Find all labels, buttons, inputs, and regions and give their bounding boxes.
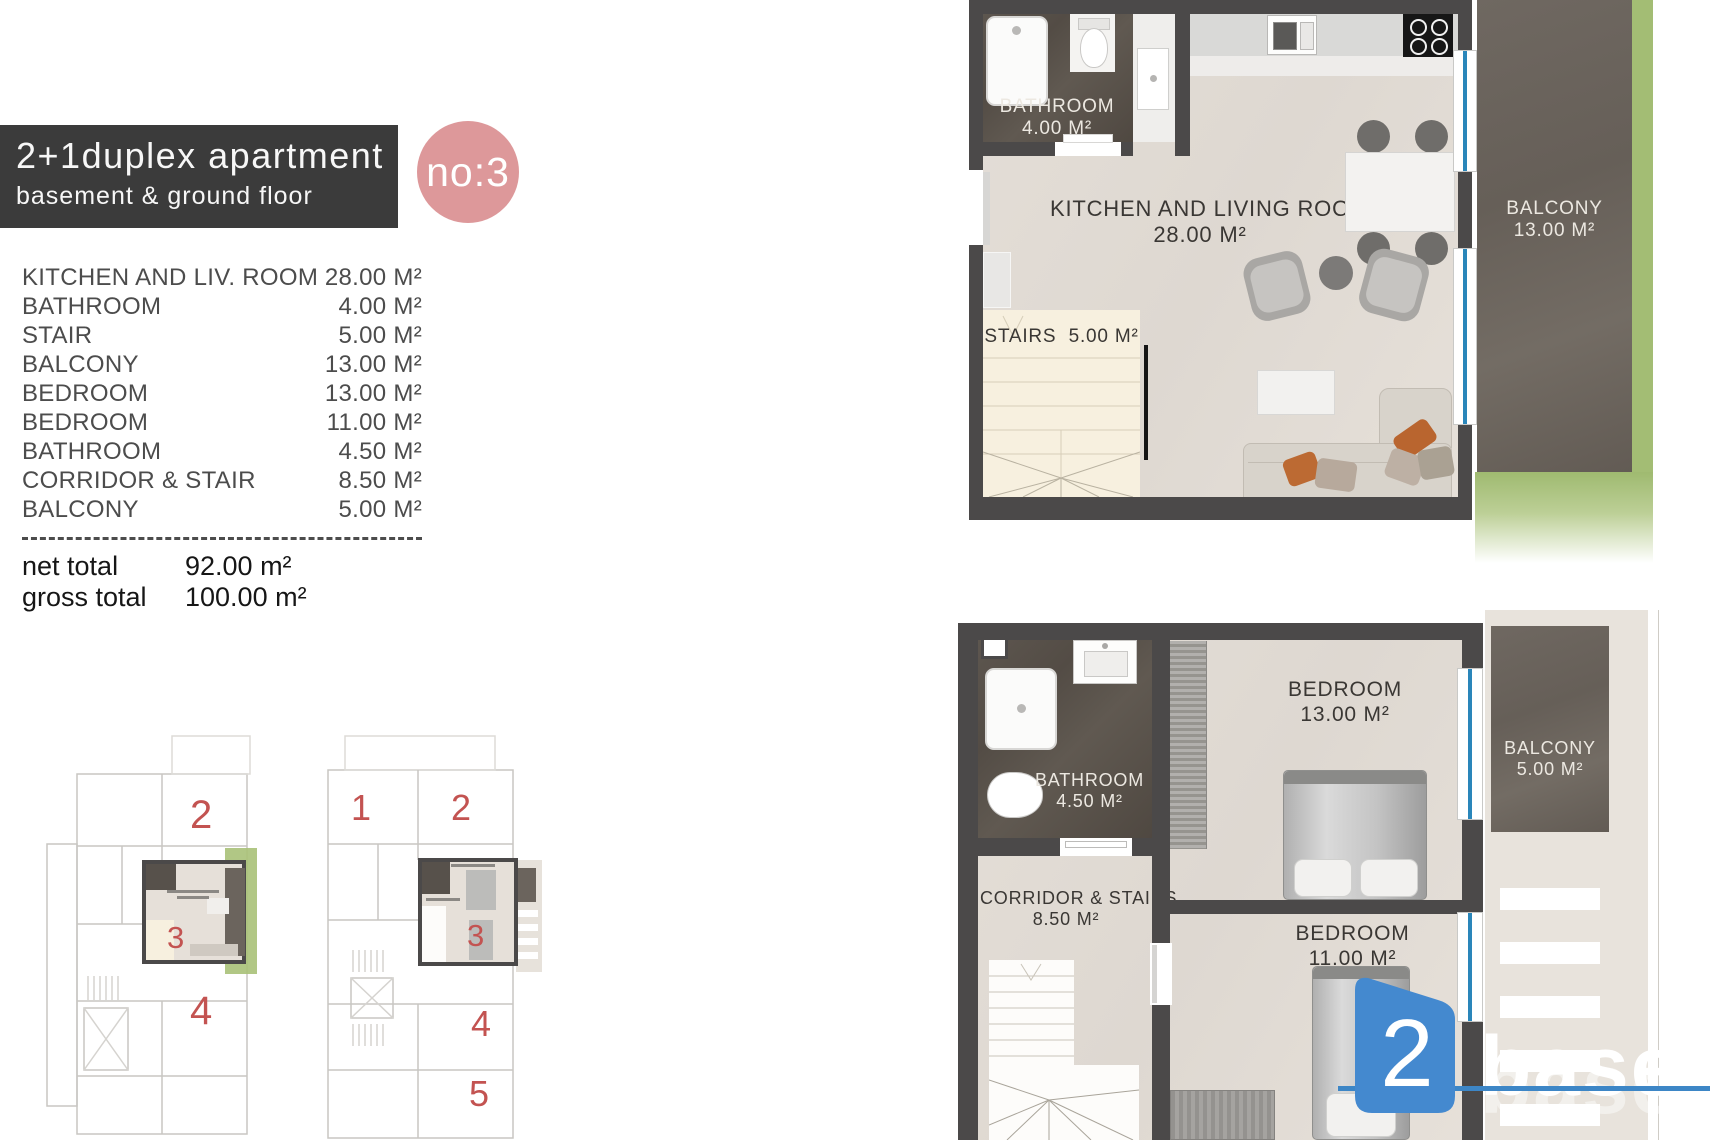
totals-block: net total 92.00 m² gross total 100.00 m²: [22, 551, 362, 613]
overview-plan-ground: 2 3 4: [22, 676, 272, 1140]
window: [1453, 50, 1477, 172]
room-name: BEDROOM: [22, 408, 148, 437]
room-name: STAIRS: [984, 326, 1056, 347]
stairs-area: STAIRS 5.00 M²: [983, 310, 1140, 497]
net-total-label: net total: [22, 551, 185, 582]
room-area-list: KITCHEN AND LIV. ROOM28.00 M² BATHROOM4.…: [22, 263, 422, 524]
entry-door-leaf: [983, 172, 990, 245]
room-area: 28.00 M²: [1050, 222, 1350, 248]
nook-wall: [1175, 14, 1190, 156]
wall-top: [958, 623, 1483, 640]
burner: [1410, 38, 1427, 55]
window: [1457, 668, 1483, 820]
room-name: CORRIDOR & STAIRS: [980, 888, 1152, 909]
room-name: BEDROOM: [1270, 922, 1435, 947]
door-threshold: [1065, 841, 1127, 848]
room-name: STAIR: [22, 321, 92, 350]
unit-number: 4: [471, 1003, 491, 1044]
kitchen-living-label: KITCHEN AND LIVING ROOM 28.00 M²: [1050, 196, 1350, 248]
dining-table: [1345, 152, 1455, 232]
bathroom-label: BATHROOM 4.50 M²: [1027, 770, 1152, 812]
balcony-floor: [1491, 626, 1609, 832]
room-row: BATHROOM4.50 M²: [22, 437, 422, 466]
pillow-gray: [1417, 445, 1456, 480]
unit-number: 2: [190, 793, 212, 837]
bedroom-large-label: BEDROOM 13.00 M²: [1255, 678, 1435, 728]
sink-bowl: [1273, 22, 1297, 50]
room-name: KITCHEN AND LIV. ROOM: [22, 263, 318, 292]
kitchen-floor-strip: [1190, 56, 1458, 76]
bathtub-drain: [1012, 26, 1021, 35]
stove: [1403, 14, 1453, 57]
highlighted-unit-3: [144, 862, 245, 962]
room-area: 13.00 M²: [1255, 703, 1435, 728]
bed-footboard: [1284, 771, 1426, 784]
garden-fade: [1475, 472, 1653, 563]
bed-pillow: [1360, 859, 1418, 897]
room-area: 4.00 M²: [339, 292, 422, 321]
drying-rack: [1300, 22, 1314, 50]
room-area: 13.00 M²: [1477, 220, 1632, 242]
dashed-divider: [22, 537, 422, 540]
corridor-label: CORRIDOR & STAIRS 8.50 M²: [980, 888, 1152, 930]
washbasin: [1073, 640, 1137, 684]
room-row: BALCONY13.00 M²: [22, 350, 422, 379]
balcony-label: BALCONY 5.00 M²: [1491, 738, 1609, 780]
stairs-area: [989, 960, 1139, 1140]
room-name: BEDROOM: [22, 379, 148, 408]
double-bed: [1283, 770, 1427, 900]
room-area: 13.00 M²: [325, 350, 422, 379]
stair-railing: [1144, 345, 1148, 460]
room-row: BATHROOM4.00 M²: [22, 292, 422, 321]
rug: [1170, 1090, 1275, 1140]
unit-number: 5: [469, 1073, 489, 1114]
window: [1457, 912, 1483, 1022]
toilet-icon: [1080, 28, 1108, 68]
garden-strip: [1632, 0, 1653, 472]
wall-left: [969, 0, 983, 520]
walkway-step: [1500, 888, 1600, 910]
door-leaf: [1152, 945, 1157, 1003]
entry-door-opening: [969, 170, 983, 245]
room-name: KITCHEN AND LIVING ROOM: [1050, 196, 1350, 222]
gross-total-row: gross total 100.00 m²: [22, 582, 362, 613]
side-table: [1319, 256, 1353, 290]
basin-drain: [1150, 75, 1157, 82]
unit-number: 4: [190, 989, 212, 1033]
stairs-label: STAIRS 5.00 M²: [983, 326, 1140, 348]
room-name: BATHROOM: [1027, 770, 1152, 791]
room-name: BATHROOM: [22, 292, 161, 321]
room-row: KITCHEN AND LIV. ROOM28.00 M²: [22, 263, 422, 292]
dining-chair: [1357, 120, 1390, 153]
unit-number: 3: [467, 918, 484, 953]
unit-number-badge: no:3: [417, 121, 519, 223]
room-name: BATHROOM: [983, 96, 1131, 118]
room-row: CORRIDOR & STAIR8.50 M²: [22, 466, 422, 495]
room-area: 4.50 M²: [339, 437, 422, 466]
wall-top: [969, 0, 1472, 14]
bathtub-drain: [1017, 704, 1026, 713]
room-name: BALCONY: [22, 495, 139, 524]
coffee-table: [1257, 370, 1335, 415]
brand-logo-number: 2: [1380, 1000, 1433, 1107]
overview-plan-basement: 1 2 3 4 5: [283, 648, 573, 1140]
apartment-title: 2+1duplex apartment: [16, 135, 398, 177]
room-name: BALCONY: [1491, 738, 1609, 759]
brand-logo-badge: 2: [1355, 970, 1455, 1113]
bed-pillow: [1294, 859, 1352, 897]
net-total-value: 92.00 m²: [185, 551, 292, 582]
title-banner: 2+1duplex apartment basement & ground fl…: [0, 125, 398, 228]
sink-nook: [1133, 14, 1175, 142]
mini-balcony: [518, 868, 536, 902]
burner: [1431, 38, 1448, 55]
wall-mid-horizontal: [1170, 900, 1462, 914]
toilet-alcove: [1070, 14, 1115, 72]
room-name: BALCONY: [22, 350, 139, 379]
room-area: 28.00 M²: [325, 263, 422, 292]
bedroom-small-label: BEDROOM 11.00 M²: [1270, 922, 1435, 972]
apartment-subtitle: basement & ground floor: [16, 182, 398, 211]
ground-floor-plan: BALCONY 13.00 M² BATHROOM 4.00 M²: [895, 0, 1660, 565]
bathtub: [986, 16, 1048, 106]
wall-mid-vertical: [1152, 640, 1170, 1140]
walkway-step: [1500, 996, 1600, 1018]
room-row: BALCONY5.00 M²: [22, 495, 422, 524]
room-area: 8.50 M²: [339, 466, 422, 495]
room-name: BEDROOM: [1255, 678, 1435, 703]
faucet: [1102, 643, 1108, 649]
wall-left: [958, 623, 978, 1140]
wardrobe: [1170, 641, 1207, 849]
room-area: 5.00 M²: [1491, 759, 1609, 780]
room-area: 4.50 M²: [1027, 791, 1152, 812]
room-name: BALCONY: [1477, 198, 1632, 220]
burner: [1410, 19, 1427, 36]
walkway-step: [1500, 942, 1600, 964]
basement-floor-plan: BALCONY 5.00 M² BATHROOM 4.50 M² BEDROOM…: [895, 560, 1710, 1140]
dining-chair: [1415, 120, 1448, 153]
wall-closet: [983, 252, 1011, 308]
room-area: 5.00 M²: [1069, 326, 1139, 347]
room-row: BEDROOM11.00 M²: [22, 408, 422, 437]
room-name: BATHROOM: [22, 437, 161, 466]
door-threshold: [1063, 134, 1113, 143]
burner: [1431, 19, 1448, 36]
bathtub: [985, 668, 1057, 750]
gross-total-label: gross total: [22, 582, 185, 613]
room-row: STAIR5.00 M²: [22, 321, 422, 350]
wall-bottom: [969, 497, 1472, 520]
washbasin: [1137, 48, 1169, 110]
unit-number: 2: [451, 787, 471, 828]
bathroom-door-opening: [1055, 142, 1121, 156]
room-area: 5.00 M²: [339, 495, 422, 524]
room-area: 8.50 M²: [980, 909, 1152, 930]
room-area: 5.00 M²: [339, 321, 422, 350]
unit-number: 3: [167, 920, 184, 955]
pillow-taupe: [1314, 457, 1358, 492]
net-total-row: net total 92.00 m²: [22, 551, 362, 582]
brand-watermark-text: base: [1480, 1018, 1679, 1115]
room-row: BEDROOM13.00 M²: [22, 379, 422, 408]
balcony-door-window: [1453, 248, 1477, 425]
room-name: CORRIDOR & STAIR: [22, 466, 256, 495]
basin-bowl: [1084, 651, 1128, 677]
room-area: 13.00 M²: [325, 379, 422, 408]
floorplan-brochure-page: 2+1duplex apartment basement & ground fl…: [0, 0, 1710, 1140]
balcony-label: BALCONY 13.00 M²: [1477, 198, 1632, 243]
unit-number: 1: [351, 787, 371, 828]
kitchen-sink: [1267, 15, 1317, 55]
gross-total-value: 100.00 m²: [185, 582, 307, 613]
room-area: 11.00 M²: [327, 408, 422, 437]
